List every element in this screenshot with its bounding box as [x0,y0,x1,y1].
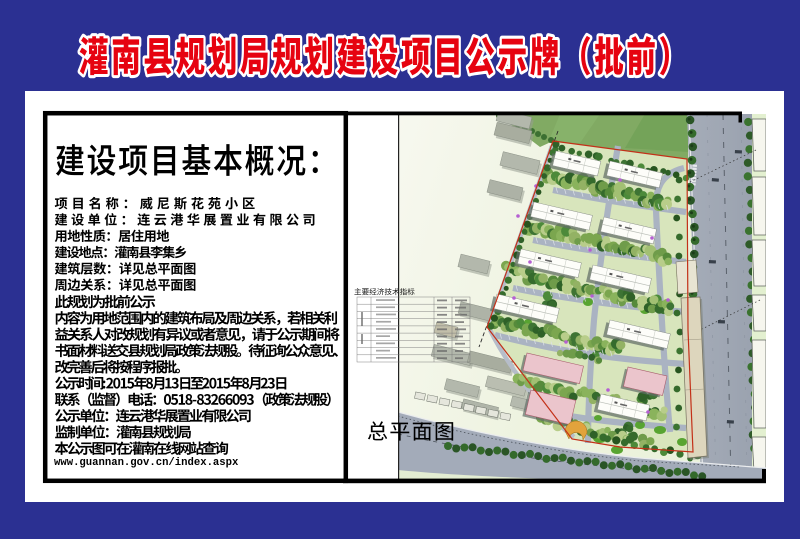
svg-text:www.guannan.gov.cn/index.aspx: www.guannan.gov.cn/index.aspx [54,457,239,469]
